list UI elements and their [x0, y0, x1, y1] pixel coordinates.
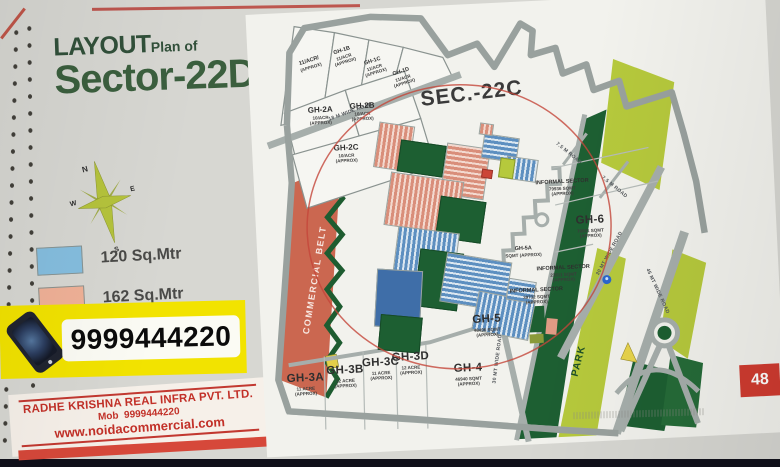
plot-label-gh-2c: GH-2C10/ACR(APPROX) — [333, 142, 359, 164]
title-plan-of: Plan of — [151, 37, 198, 55]
smartphone-icon — [7, 309, 61, 376]
housing-block-162 — [479, 122, 495, 136]
plot-label-informal-sector-1: INFORMAL SECTOR79936 SQMT(APPROX) — [535, 178, 589, 198]
yellow-triangle-marker — [620, 342, 637, 363]
phone-number: 9999444220 — [61, 315, 240, 361]
plot-label-gh-2b: GH-2B10/ACR(APPROX) — [349, 101, 375, 123]
plot-label-informal-sector-3: INFORMAL SECTOR39732 SQMT(APPROX) — [510, 286, 564, 306]
binding-holes — [25, 20, 39, 456]
plot-label-gh-6: GH-678881 SQMT(APPROX) — [575, 213, 605, 239]
svg-text:W: W — [69, 200, 77, 208]
svg-text:N: N — [81, 164, 89, 174]
plot-label-gh-3d: GH-3D12 ACRE(APPROX) — [391, 350, 429, 376]
smartphone-body — [4, 309, 66, 376]
legend-label-120: 120 Sq.Mtr — [100, 245, 182, 267]
binding-holes — [0, 24, 21, 454]
phone-banner: 9999444220 — [0, 300, 247, 379]
legend-row-120: 120 Sq.Mtr — [36, 240, 182, 276]
plot-label-gh-4: GH-446940 SQMT(APPROX) — [453, 362, 483, 388]
green-patch — [596, 56, 679, 193]
title-block: LAYOUTPlan of Sector-22D — [53, 27, 257, 104]
green-block — [498, 157, 516, 179]
title-sector: Sector-22D — [54, 51, 257, 103]
catalog-page: LAYOUTPlan of Sector-22D N E S W 120 Sq.… — [0, 0, 780, 459]
plot-label-gh-3a: GH-3A11 ACRE(APPROX) — [286, 371, 324, 397]
svg-text:E: E — [130, 185, 137, 193]
red-block — [481, 169, 493, 179]
plot-label-informal-sector-2: INFORMAL SECTOR23911 SQMT(APPROX) — [536, 264, 590, 284]
page-top-red-line — [92, 4, 360, 11]
page-number-badge: 48 — [739, 363, 780, 397]
legend-swatch-120 — [36, 245, 83, 275]
green-block — [378, 314, 423, 354]
plot-label-gh-2a: GH-2A10/ACR(APPROX) — [308, 105, 334, 127]
photo-frame: LAYOUTPlan of Sector-22D N E S W 120 Sq.… — [0, 0, 780, 467]
green-block — [397, 139, 447, 177]
plot-label-gh-5: GH-548496 SQMT(APPROX) — [472, 313, 502, 339]
plot-label-gh-3b: GH-3B12 ACRE(APPROX) — [326, 363, 364, 389]
sector-22d-map: SEC.-22C COMMERCIAL BELT PARK 11/ACR/(AP… — [245, 0, 780, 457]
smartphone-home-button — [47, 359, 53, 365]
plot-label-gh-5a: GH-5ASQMT (APPROX) — [505, 245, 542, 259]
